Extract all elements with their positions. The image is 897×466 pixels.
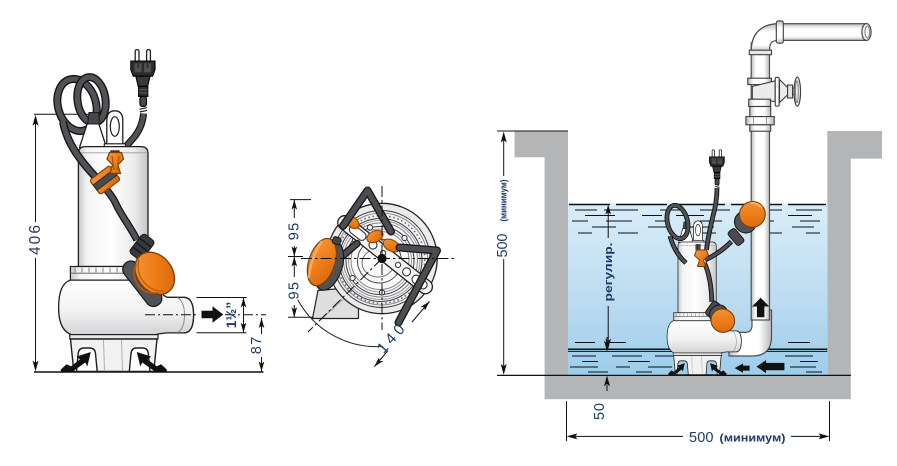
svg-text:1½”: 1½” [223,302,239,328]
svg-text:406: 406 [27,225,44,255]
svg-text:500: 500 [495,234,511,258]
svg-text:95: 95 [287,282,303,300]
svg-text:87: 87 [249,337,265,355]
svg-text:(минимум): (минимум) [720,432,787,444]
svg-text:500: 500 [689,430,714,446]
svg-text:95: 95 [287,223,303,241]
svg-text:50: 50 [592,403,608,420]
svg-text:140: 140 [374,321,409,357]
svg-text:регулир.: регулир. [603,243,615,302]
svg-text:(минимум): (минимум) [499,180,510,222]
